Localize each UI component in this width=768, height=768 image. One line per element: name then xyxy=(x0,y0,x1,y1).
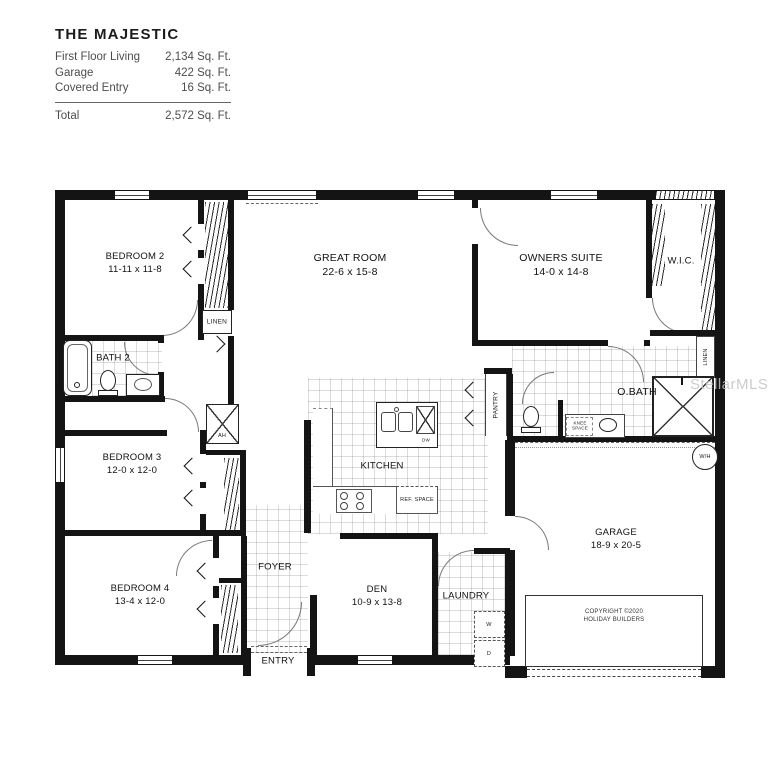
wall-garage-left-a xyxy=(505,440,515,516)
room-label-obath: O.BATH xyxy=(617,385,657,399)
stellar-mls-watermark: StellarMLS xyxy=(690,376,768,393)
room-dims: 10-9 x 13-8 xyxy=(352,597,402,610)
linen-top-label: LINEN xyxy=(207,319,227,326)
wall-exterior-left xyxy=(55,190,65,665)
room-name: OWNERS SUITE xyxy=(519,251,603,265)
title-block: THE MAJESTIC First Floor Living2,134 Sq.… xyxy=(55,26,231,122)
room-label-bedroom4: BEDROOM 4 13-4 x 12-0 xyxy=(111,583,170,609)
range-burner xyxy=(356,502,364,510)
bifold-door-chevron xyxy=(197,601,214,618)
room-label-bedroom2: BEDROOM 2 11-11 x 11-8 xyxy=(106,251,165,277)
window-sill-dash xyxy=(246,203,318,204)
garage-opening-dash xyxy=(527,676,701,677)
area-table: First Floor Living2,134 Sq. Ft. Garage42… xyxy=(55,50,231,103)
wall-den-left xyxy=(310,595,317,655)
room-name: O.BATH xyxy=(617,385,657,399)
wall-bedroom4-closet-top xyxy=(219,578,243,583)
wall-bedroom2-closet-left-a xyxy=(198,198,204,224)
wic-hatch-left xyxy=(652,204,665,286)
dryer-label: D xyxy=(487,651,491,657)
room-name: GARAGE xyxy=(591,527,641,540)
room-label-laundry: LAUNDRY xyxy=(443,591,490,604)
room-dims: 13-4 x 12-0 xyxy=(111,596,170,609)
wall-great-owners-a xyxy=(472,198,478,208)
linen-right-label: LINEN xyxy=(703,348,709,365)
area-row-label: Covered Entry xyxy=(55,81,129,97)
range-burner xyxy=(356,492,364,500)
wall-entry-left xyxy=(243,648,251,676)
kitchen-counter-left xyxy=(313,408,333,488)
washer-label: W xyxy=(486,622,491,628)
room-name: ENTRY xyxy=(261,656,294,669)
wic-door-arc xyxy=(652,298,688,334)
wall-pantry-obath xyxy=(507,374,513,438)
air-handler-label: AH xyxy=(217,433,227,439)
wall-bedroom4-right-b xyxy=(213,586,219,598)
room-name: BEDROOM 2 xyxy=(106,251,165,264)
room-dims: 14-0 x 14-8 xyxy=(519,265,603,279)
obath-toilet-tank xyxy=(521,427,541,433)
island-faucet xyxy=(394,407,399,412)
garage-door-arc xyxy=(515,516,549,550)
room-name: W.I.C. xyxy=(667,256,694,269)
garage-ceiling-dash xyxy=(515,442,715,443)
window-bedroom3 xyxy=(55,448,65,482)
room-name: FOYER xyxy=(258,562,292,575)
area-row-value: 16 Sq. Ft. xyxy=(181,81,231,97)
wall-great-room-left xyxy=(228,198,234,310)
room-name: BATH 2 xyxy=(96,353,130,366)
front-door-dash xyxy=(251,652,307,653)
bath2-toilet-tank xyxy=(98,390,118,396)
area-row: First Floor Living2,134 Sq. Ft. xyxy=(55,50,231,66)
wall-bedroom2-closet-left-b xyxy=(198,250,204,258)
room-name: BEDROOM 3 xyxy=(103,452,162,465)
wall-bedroom4-closet-right xyxy=(241,536,247,655)
bifold-door-chevron xyxy=(184,458,201,475)
island-sink-left xyxy=(381,412,396,432)
room-name: KITCHEN xyxy=(360,461,403,474)
bedroom3-closet-hatch xyxy=(224,458,239,532)
bedroom4-door-arc xyxy=(176,540,212,576)
window-bedroom4 xyxy=(138,655,172,665)
wall-hall-left xyxy=(228,336,234,406)
wall-garage-bottom-left-stub xyxy=(505,666,527,678)
room-label-bath2: BATH 2 xyxy=(96,353,130,366)
area-row: Covered Entry16 Sq. Ft. xyxy=(55,81,231,97)
linen-door-chevron xyxy=(209,336,226,353)
wall-exterior-top xyxy=(55,190,725,200)
bedroom3-door-arc xyxy=(165,398,199,432)
wall-owners-obath-stub xyxy=(644,340,650,346)
wall-exterior-right xyxy=(715,190,725,678)
room-dims: 18-9 x 20-5 xyxy=(591,540,641,553)
wall-garage-left-b xyxy=(505,550,515,656)
wall-bedroom3-top xyxy=(55,430,167,436)
room-dims: 12-0 x 12-0 xyxy=(103,465,162,478)
obath-sink xyxy=(599,418,617,432)
bifold-door-chevron xyxy=(184,490,201,507)
room-label-den: DEN 10-9 x 13-8 xyxy=(352,584,402,610)
room-name: GREAT ROOM xyxy=(314,251,387,265)
room-name: DEN xyxy=(352,584,402,597)
wall-bedroom3-closet-right xyxy=(240,450,246,536)
wall-obath-toilet-nook xyxy=(558,400,563,438)
wall-great-owners-b xyxy=(472,244,478,340)
room-label-kitchen: KITCHEN xyxy=(360,461,403,474)
wall-garage-bottom-right-stub xyxy=(701,666,723,678)
copyright-line2: HOLIDAY BUILDERS xyxy=(584,617,645,623)
room-label-entry: ENTRY xyxy=(261,656,294,669)
area-total-row: Total2,572 Sq. Ft. xyxy=(55,110,231,122)
garage-opening-dash xyxy=(527,669,701,670)
island-sink-right xyxy=(398,412,413,432)
wic-hatch-right xyxy=(701,204,715,330)
range-burner xyxy=(340,502,348,510)
wall-bedroom4-right-a xyxy=(213,536,219,558)
ref-space-label: REF. SPACE xyxy=(400,497,434,503)
copyright-line1: COPYRIGHT ©2020 xyxy=(585,609,643,615)
knee-space-label: KNEE SPACE xyxy=(569,421,591,432)
obath-toilet xyxy=(523,406,539,427)
wall-bath2-bottom xyxy=(55,396,165,402)
bedroom4-closet-hatch xyxy=(221,585,238,653)
room-dims: 11-11 x 11-8 xyxy=(106,264,165,277)
room-label-bedroom3: BEDROOM 3 12-0 x 12-0 xyxy=(103,452,162,478)
wall-bath2-right-a xyxy=(158,335,164,343)
dishwasher xyxy=(416,406,435,434)
wall-bedroom3-closet-top xyxy=(206,450,242,455)
room-name: LAUNDRY xyxy=(443,591,490,604)
room-label-foyer: FOYER xyxy=(258,562,292,575)
window-great-room-left xyxy=(248,190,316,200)
floor-plan: THE MAJESTIC First Floor Living2,134 Sq.… xyxy=(0,0,768,768)
bath2-sink xyxy=(134,378,152,391)
window-bedroom2 xyxy=(115,190,149,200)
room-name: BEDROOM 4 xyxy=(111,583,170,596)
room-label-owners-suite: OWNERS SUITE 14-0 x 14-8 xyxy=(519,251,603,279)
area-row-value: 2,134 Sq. Ft. xyxy=(165,50,231,66)
wall-den-laundry xyxy=(432,533,438,655)
bedroom2-closet-hatch xyxy=(205,202,228,308)
plan-title: THE MAJESTIC xyxy=(55,26,231,43)
range-burner xyxy=(340,492,348,500)
bath2-tub-drain xyxy=(74,382,80,388)
water-heater-label: W/H xyxy=(699,454,710,460)
window-owners-suite xyxy=(551,190,597,200)
bedroom2-door-arc xyxy=(162,300,198,336)
bifold-door-chevron xyxy=(183,261,200,278)
window-great-room-right xyxy=(418,190,454,200)
wall-kitchen-back xyxy=(304,420,311,533)
area-row-label: First Floor Living xyxy=(55,50,140,66)
window-den xyxy=(358,655,392,665)
wall-bedroom3-closet-b xyxy=(200,482,206,488)
pantry-label: PANTRY xyxy=(493,392,500,419)
garage-door-panel xyxy=(525,595,703,667)
wall-den-top xyxy=(340,533,438,539)
garage-ceiling-dash xyxy=(515,447,715,448)
area-row: Garage422 Sq. Ft. xyxy=(55,66,231,82)
bath2-toilet xyxy=(100,370,116,391)
bifold-door-chevron xyxy=(183,227,200,244)
wic-top-wall-hatch xyxy=(656,191,714,199)
room-label-garage: GARAGE 18-9 x 20-5 xyxy=(591,527,641,553)
total-label: Total xyxy=(55,110,79,122)
wall-owners-obath xyxy=(472,340,608,346)
total-value: 2,572 Sq. Ft. xyxy=(165,110,231,122)
dishwasher-label: DW xyxy=(422,438,430,443)
shower-head-symbol xyxy=(681,377,683,385)
room-dims: 22-6 x 15-8 xyxy=(314,265,387,279)
room-label-great-room: GREAT ROOM 22-6 x 15-8 xyxy=(314,251,387,279)
area-row-label: Garage xyxy=(55,66,93,82)
room-label-wic: W.I.C. xyxy=(667,256,694,269)
owners-suite-door-arc xyxy=(480,208,518,246)
front-door-dash xyxy=(251,646,307,647)
area-row-value: 422 Sq. Ft. xyxy=(175,66,231,82)
wall-bedroom4-right-c xyxy=(213,624,219,655)
